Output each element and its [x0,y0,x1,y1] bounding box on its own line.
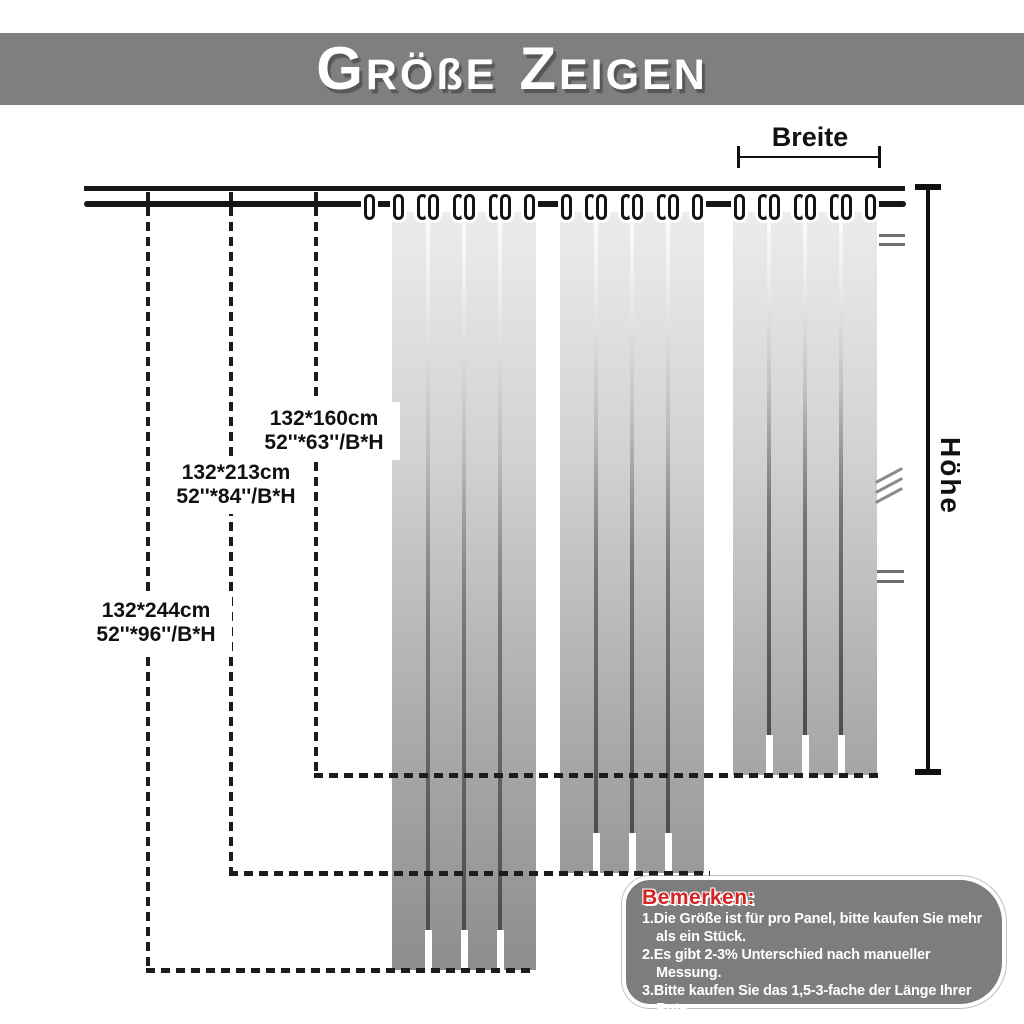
width-bracket-line [738,156,881,158]
pleat-separator [426,212,430,930]
header-rest-1: RÖßE [366,51,497,99]
notes-title: Bemerken: [642,886,990,910]
grommet-ring [500,194,511,220]
pleat-bottom-gap [461,930,468,970]
pleat-bottom-gap [838,735,845,775]
pleat-separator [803,212,807,735]
grommet-ring [393,194,404,220]
grommet-ring [758,194,769,220]
note-line: 1.Die Größe ist für pro Panel, bitte kau… [642,910,990,928]
width-bracket-tick-right [878,146,881,168]
grommet-rod-segment [704,201,735,207]
pleat-bottom-gap [629,833,636,873]
fold-mark [879,243,905,246]
header-rest-2: EIGEN [559,51,708,99]
grommet-ring [596,194,607,220]
pleat-bottom-gap [497,930,504,970]
grommet-ring [417,194,428,220]
note-line: 3.Bitte kaufen Sie das 1,5-3-fache der L… [642,982,990,1000]
pleat-separator [594,212,598,833]
grommet-ring [585,194,596,220]
grommet-ring [428,194,439,220]
curtain-rod [84,186,905,191]
pleat-bottom-gap [802,735,809,775]
grommet-ring [734,194,745,220]
pleat-separator [839,212,843,735]
size-cm: 132*244cm [86,599,226,623]
grommet-ring [841,194,852,220]
grommet-ring [668,194,679,220]
grommet-ring [621,194,632,220]
size-cm: 132*213cm [166,461,306,485]
grommet-ring [794,194,805,220]
dashed-line-vertical-63inch [314,192,318,775]
note-line: Messung. [642,964,990,982]
grommet-ring [830,194,841,220]
notes-box: Bemerken: 1.Die Größe ist für pro Panel,… [622,876,1006,1008]
height-measure-cap-top [915,184,941,190]
grommet-ring [364,194,375,220]
height-label: Höhe [934,437,966,515]
pleat-bottom-gap [766,735,773,775]
grommet-rod-segment [536,201,562,207]
fold-mark [879,234,905,237]
header-initial-2: Z [519,35,559,102]
pleat-bottom-gap [425,930,432,970]
header-initial-1: G [316,35,366,102]
grommet-rod-segment [84,201,363,207]
grommet-ring [769,194,780,220]
fold-mark [877,580,904,583]
dashed-line-vertical-96inch [146,192,150,970]
height-measure-cap-bottom [915,769,941,775]
grommet-ring [489,194,500,220]
pleat-separator [630,212,634,833]
pleat-separator [498,212,502,930]
pleat-separator [767,212,771,735]
grommet-ring [464,194,475,220]
width-label: Breite [738,122,882,153]
pleat-separator [462,212,466,930]
size-label-96inch: 132*244cm 52''*96''/B*H [80,594,232,652]
fold-mark [877,570,904,573]
grommet-ring [805,194,816,220]
dashed-line-bottom-84inch [229,871,710,876]
dashed-line-vertical-84inch [229,192,233,873]
grommet-ring [692,194,703,220]
note-line: 2.Es gibt 2-3% Unterschied nach manuelle… [642,946,990,964]
size-label-63inch: 132*160cm 52''*63''/B*H [248,402,400,460]
grommet-ring [632,194,643,220]
header-band: GRÖßE ZEIGEN [0,33,1024,105]
header-title-word-1: GRÖßE [316,39,497,99]
size-inch: 52''*84''/B*H [166,485,306,509]
dashed-line-bottom-96inch [146,968,536,973]
size-inch: 52''*63''/B*H [254,431,394,455]
grommet-ring [657,194,668,220]
note-line: als ein Stück. [642,928,990,946]
curtain-panel-63inch [733,212,877,775]
header-title-word-2: ZEIGEN [519,39,707,99]
size-label-84inch: 132*213cm 52''*84''/B*H [160,456,312,514]
curtain-panel-96inch [392,212,536,970]
pleat-bottom-gap [665,833,672,873]
note-line: Rute. [642,1000,990,1018]
grommet-ring [524,194,535,220]
size-chart-image: GRÖßE ZEIGEN Breite 132*160cm 52''*63''/… [0,0,1024,1024]
grommet-ring [453,194,464,220]
grommet-rod-segment [876,201,906,207]
dashed-line-bottom-63inch [314,773,884,778]
height-measure-line [926,188,930,775]
width-bracket-tick-left [737,146,740,168]
grommet-ring [561,194,572,220]
size-inch: 52''*96''/B*H [86,623,226,647]
size-cm: 132*160cm [254,407,394,431]
pleat-separator [666,212,670,833]
pleat-bottom-gap [593,833,600,873]
grommet-ring [865,194,876,220]
